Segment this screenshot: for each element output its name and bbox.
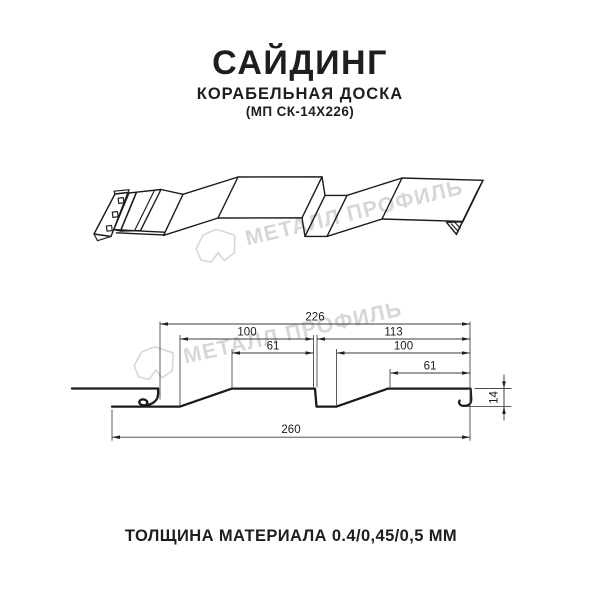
far-section-edge	[183, 177, 483, 196]
section-profile-line	[112, 389, 471, 407]
cross-section-drawing: 226 100 113 61 100 61 260 14	[72, 312, 512, 441]
dim-label-right-flat: 100	[394, 341, 413, 353]
dim-label-height: 14	[489, 391, 501, 404]
product-drawing-page: { "header": { "title": "САЙДИНГ", "subti…	[0, 0, 600, 600]
dim-label-right-module: 113	[384, 327, 402, 339]
dim-label-right-small-flat: 61	[424, 361, 437, 373]
far-hem-connector	[161, 190, 183, 195]
dim-label-left-flat: 61	[267, 341, 280, 353]
dim-label-left-module: 100	[237, 327, 256, 339]
technical-drawing: 226 100 113 61 100 61 260 14	[0, 0, 600, 600]
hem-bottom-edges	[114, 230, 164, 235]
dimension-lines	[112, 324, 504, 437]
dim-label-overall: 260	[281, 424, 300, 436]
profile-3d-sketch	[94, 177, 483, 241]
flap-crease	[135, 190, 155, 231]
dimension-arrowheads	[112, 322, 506, 439]
dim-label-coverage: 226	[305, 312, 324, 324]
lock-curl	[139, 389, 158, 406]
